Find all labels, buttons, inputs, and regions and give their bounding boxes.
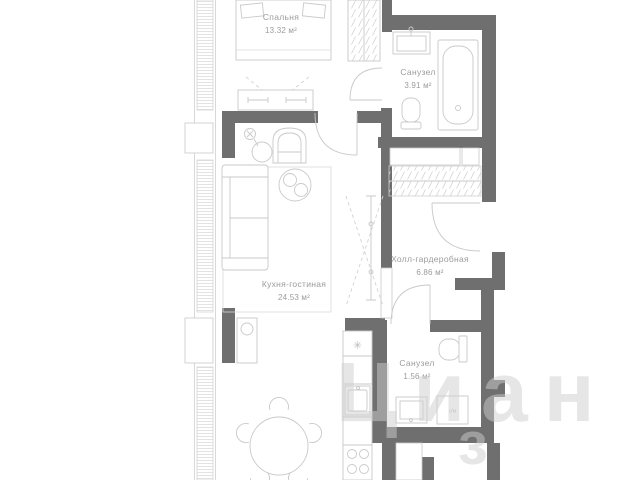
- dining-chair: [270, 397, 289, 410]
- entry-door: [432, 203, 480, 251]
- toilet: [402, 98, 420, 122]
- coffee-table: [279, 169, 311, 201]
- counter-outline: [343, 331, 372, 480]
- wall-segment: [487, 443, 500, 480]
- wall-segment: [378, 137, 496, 148]
- wall-segment: [387, 15, 496, 30]
- wall-segment: [455, 278, 505, 290]
- toilet: [439, 339, 460, 360]
- wall-segment: [481, 380, 505, 397]
- floor-plan: ✳ с/м Спальня 13.32 м² Санузел 3.91 м² Х…: [0, 0, 640, 480]
- bathroom-small-door: [391, 285, 430, 324]
- hall-shelf: [462, 148, 479, 165]
- wall-segment: [222, 308, 235, 363]
- bedroom-door: [315, 113, 357, 155]
- kitchen-counter: ✳: [343, 331, 372, 480]
- duct-niche: [396, 443, 422, 480]
- wall-segment: [422, 457, 434, 480]
- wall-segment: [482, 18, 496, 202]
- sofa: [222, 165, 268, 270]
- dining-chair: [309, 424, 322, 443]
- hall-shelf: [390, 148, 460, 165]
- wall-pier: [185, 318, 213, 363]
- partition-track: [366, 196, 376, 300]
- stove-burner: [360, 450, 369, 459]
- bathroom-large-fixtures: [393, 27, 478, 130]
- washing-machine-label: с/м: [449, 409, 457, 415]
- wall-segment: [222, 111, 318, 123]
- toilet-tank: [459, 336, 467, 362]
- wall-segment: [222, 111, 235, 158]
- console-cabinet: [237, 318, 257, 363]
- wall-segment: [430, 320, 482, 332]
- wall-pier: [185, 123, 213, 153]
- opening-cross-lines: [346, 196, 383, 306]
- toilet-tank: [401, 122, 421, 129]
- counter-dividers: [343, 356, 372, 445]
- kitchen-sink-basin: [348, 390, 367, 411]
- wall-segment: [372, 320, 387, 430]
- hall-cupboard: [381, 268, 392, 318]
- hall-wardrobe-zone: [389, 166, 481, 196]
- floor-plan-drawing: ✳ с/м: [0, 0, 640, 480]
- bathroom-large-door: [350, 68, 382, 100]
- window-band: [197, 0, 213, 110]
- stove-burner: [348, 465, 357, 474]
- window-band: [197, 160, 213, 312]
- wall-segment: [372, 427, 494, 443]
- living-room-furniture: [222, 128, 331, 363]
- kitchen-faucet-icon: [357, 387, 360, 390]
- side-table: [252, 142, 272, 162]
- fridge-icon: ✳: [353, 340, 362, 352]
- wall-segment: [357, 111, 382, 123]
- bedroom-furniture: [236, 0, 380, 110]
- dining-table: [250, 417, 308, 475]
- window-band: [197, 367, 213, 480]
- window-wall: [185, 0, 216, 480]
- stove-burner: [348, 450, 357, 459]
- stove-burner: [360, 465, 369, 474]
- partition-marks: [346, 196, 383, 306]
- dining-chair: [236, 424, 249, 443]
- bathroom-small-fixtures: с/м: [396, 336, 468, 424]
- wall-segment: [382, 443, 396, 480]
- wall-segment: [481, 290, 494, 443]
- bed: [236, 0, 331, 60]
- dining-set: [236, 397, 321, 480]
